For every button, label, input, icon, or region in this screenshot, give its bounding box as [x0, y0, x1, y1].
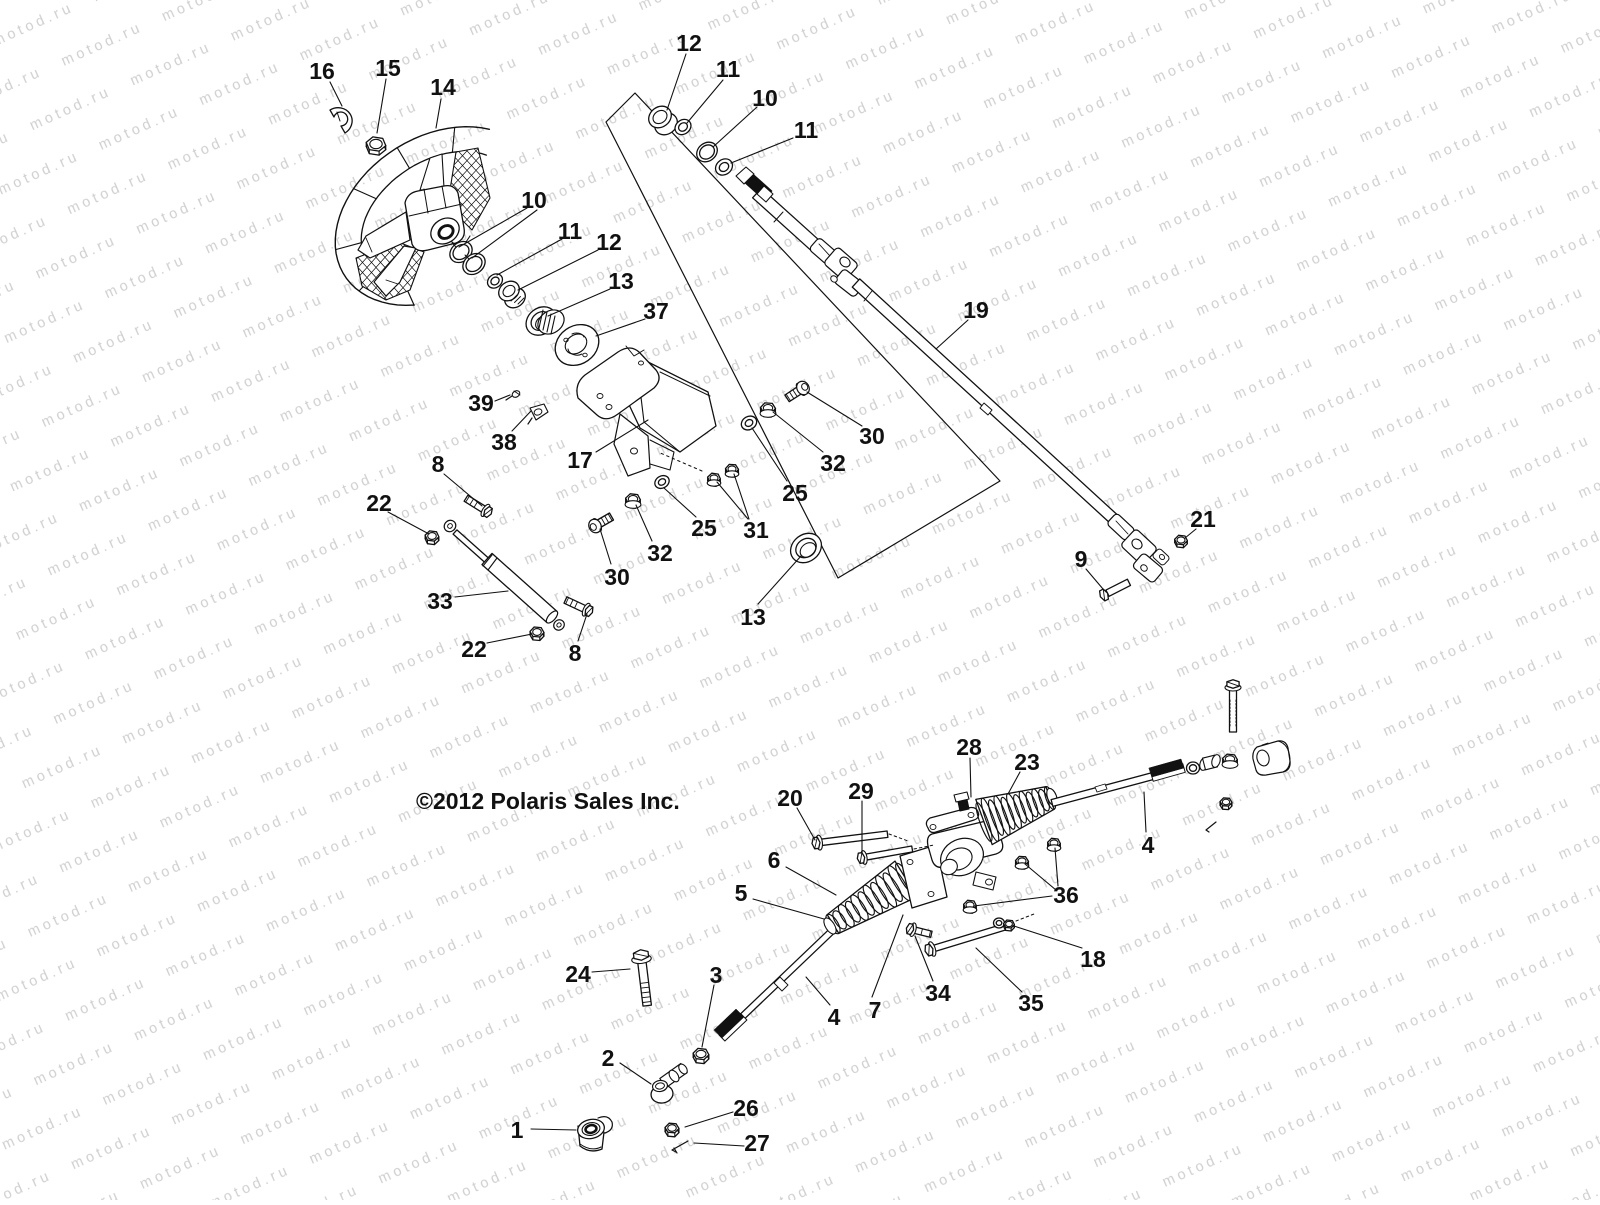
svg-text:23: 23	[1014, 749, 1040, 775]
svg-text:1: 1	[511, 1117, 524, 1143]
svg-text:11: 11	[558, 218, 583, 244]
svg-text:16: 16	[309, 58, 335, 84]
svg-text:15: 15	[375, 55, 401, 81]
svg-text:4: 4	[828, 1004, 841, 1030]
svg-text:34: 34	[925, 980, 951, 1006]
svg-text:8: 8	[432, 451, 445, 477]
svg-text:21: 21	[1190, 506, 1216, 532]
svg-text:28: 28	[956, 734, 982, 760]
svg-text:25: 25	[782, 480, 808, 506]
svg-text:12: 12	[596, 229, 622, 255]
svg-text:7: 7	[869, 997, 882, 1023]
svg-text:22: 22	[366, 490, 392, 516]
svg-text:11: 11	[794, 117, 819, 143]
svg-text:25: 25	[691, 515, 717, 541]
svg-text:33: 33	[427, 588, 453, 614]
svg-text:5: 5	[735, 880, 748, 906]
svg-text:10: 10	[521, 187, 547, 213]
svg-text:6: 6	[768, 847, 781, 873]
svg-text:32: 32	[820, 450, 846, 476]
svg-text:12: 12	[676, 30, 702, 56]
svg-text:3: 3	[710, 962, 723, 988]
svg-text:©2012 Polaris Sales Inc.: ©2012 Polaris Sales Inc.	[416, 788, 680, 814]
svg-text:32: 32	[647, 540, 673, 566]
svg-text:13: 13	[608, 268, 634, 294]
svg-text:38: 38	[491, 429, 517, 455]
svg-text:8: 8	[569, 640, 582, 666]
svg-text:10: 10	[752, 85, 778, 111]
svg-text:22: 22	[461, 636, 487, 662]
svg-text:37: 37	[643, 298, 669, 324]
svg-text:17: 17	[567, 447, 593, 473]
svg-text:26: 26	[733, 1095, 759, 1121]
svg-text:11: 11	[716, 56, 741, 82]
svg-text:36: 36	[1053, 882, 1079, 908]
svg-text:30: 30	[859, 423, 885, 449]
svg-text:9: 9	[1075, 546, 1088, 572]
svg-text:4: 4	[1142, 832, 1155, 858]
svg-text:30: 30	[604, 564, 630, 590]
svg-text:39: 39	[468, 390, 494, 416]
svg-text:27: 27	[744, 1130, 770, 1156]
svg-text:24: 24	[565, 961, 591, 987]
svg-text:2: 2	[602, 1045, 615, 1071]
svg-text:31: 31	[743, 517, 769, 543]
svg-text:35: 35	[1018, 990, 1044, 1016]
svg-text:14: 14	[430, 74, 456, 100]
svg-text:29: 29	[848, 778, 874, 804]
svg-text:18: 18	[1080, 946, 1106, 972]
svg-text:19: 19	[963, 297, 989, 323]
svg-text:13: 13	[740, 604, 766, 630]
svg-text:20: 20	[777, 785, 803, 811]
